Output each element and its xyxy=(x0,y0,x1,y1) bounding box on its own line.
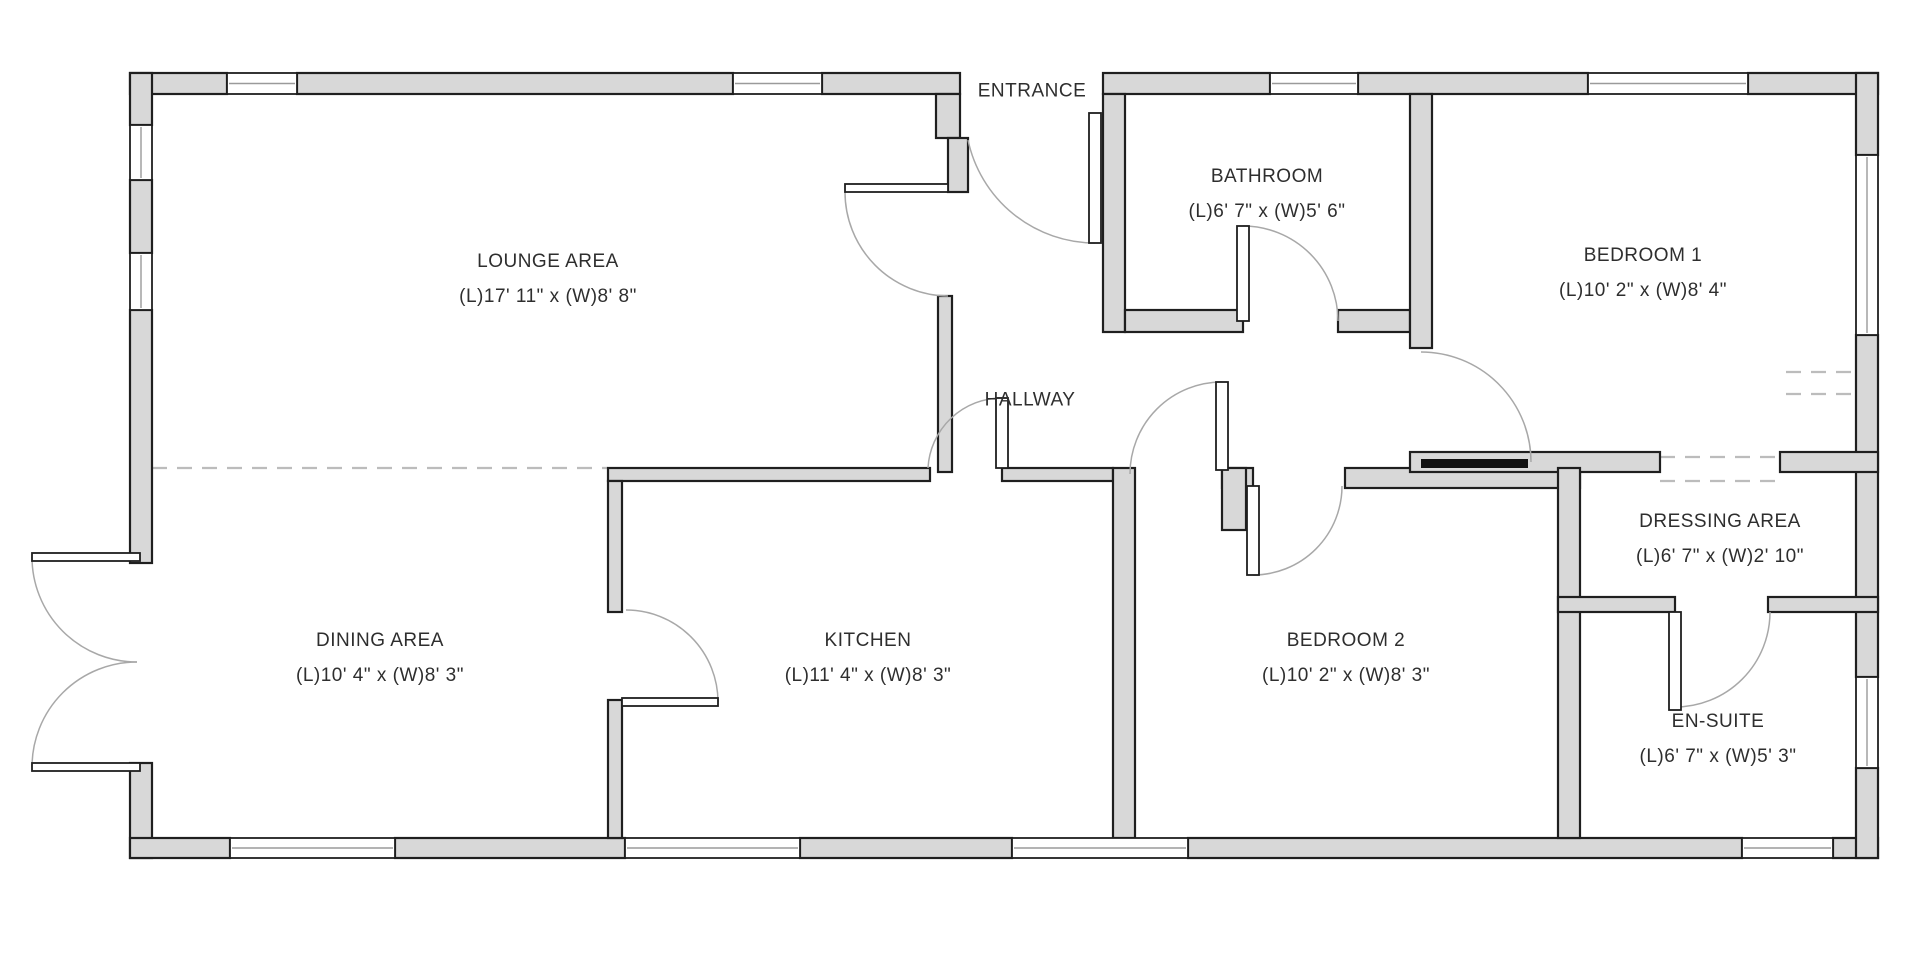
wall-segment xyxy=(608,700,622,838)
room-label-en-suite: EN-SUITE (L)6' 7" x (W)5' 3" xyxy=(1640,704,1797,774)
room-name: DINING AREA xyxy=(296,623,464,658)
room-name: BATHROOM xyxy=(1189,159,1346,194)
wall-segment xyxy=(1103,94,1125,332)
door-swing-arc xyxy=(845,192,948,296)
room-dimensions: (L)11' 4" x (W)8' 3" xyxy=(785,658,952,693)
room-dimensions: (L)6' 7" x (W)5' 3" xyxy=(1640,739,1797,774)
room-label-kitchen: KITCHEN (L)11' 4" x (W)8' 3" xyxy=(785,623,952,693)
wall-segment xyxy=(1558,468,1580,838)
door-leaf xyxy=(1089,113,1101,243)
door-leaf xyxy=(32,553,140,561)
wall-segment xyxy=(1558,597,1675,612)
wall-segment xyxy=(608,481,622,612)
wall-segment xyxy=(1103,73,1270,94)
wall-segment xyxy=(1780,452,1878,472)
room-dimensions: (L)10' 4" x (W)8' 3" xyxy=(296,658,464,693)
room-label-bedroom-1: BEDROOM 1 (L)10' 2" x (W)8' 4" xyxy=(1559,238,1727,308)
wall-segment xyxy=(1113,468,1135,838)
wall-segment xyxy=(130,180,152,253)
wall-segment xyxy=(130,310,152,563)
wall-segment xyxy=(130,73,152,125)
room-label-lounge-area: LOUNGE AREA (L)17' 11" x (W)8' 8" xyxy=(459,244,637,314)
wall-segment xyxy=(936,94,960,138)
wall-segment xyxy=(948,138,968,192)
room-name: ENTRANCE xyxy=(978,74,1087,109)
wall-segment xyxy=(1358,73,1588,94)
door-swing-arc xyxy=(1421,352,1531,462)
room-name: EN-SUITE xyxy=(1640,704,1797,739)
door-leaf xyxy=(32,763,140,771)
room-name: BEDROOM 1 xyxy=(1559,238,1727,273)
room-name: KITCHEN xyxy=(785,623,952,658)
wall-segment xyxy=(1856,768,1878,858)
room-name: BEDROOM 2 xyxy=(1262,623,1430,658)
wall-segment xyxy=(1188,838,1742,858)
wall-segment xyxy=(608,468,930,481)
door-leaf xyxy=(1237,226,1249,321)
wall-segment xyxy=(822,73,960,94)
room-dimensions: (L)10' 2" x (W)8' 4" xyxy=(1559,273,1727,308)
door-leaf xyxy=(845,184,948,192)
door-swing-arc xyxy=(1243,226,1338,321)
door-swing-arc xyxy=(1675,612,1770,707)
wall-segment xyxy=(1856,335,1878,677)
wall-segment xyxy=(1410,94,1432,348)
wall-segment xyxy=(800,838,1012,858)
room-label-entrance: ENTRANCE xyxy=(978,74,1087,109)
room-dimensions: (L)17' 11" x (W)8' 8" xyxy=(459,279,637,314)
room-name: DRESSING AREA xyxy=(1636,504,1804,539)
floor-plan-canvas xyxy=(0,0,1920,957)
wall-segment xyxy=(1222,468,1246,530)
door-swing-arc xyxy=(32,557,137,662)
door-leaf xyxy=(622,698,718,706)
wall-segment xyxy=(1338,310,1410,332)
floor-plan-page: LOUNGE AREA (L)17' 11" x (W)8' 8" DINING… xyxy=(0,0,1920,957)
wall-segment xyxy=(297,73,733,94)
room-dimensions: (L)6' 7" x (W)5' 6" xyxy=(1189,194,1346,229)
door-swing-arc xyxy=(968,140,1095,243)
door-swing-arc xyxy=(626,610,718,702)
room-label-bedroom-2: BEDROOM 2 (L)10' 2" x (W)8' 3" xyxy=(1262,623,1430,693)
wall-segment xyxy=(938,296,952,472)
room-name: HALLWAY xyxy=(985,383,1076,418)
wall-segment xyxy=(1856,73,1878,155)
wall-segment xyxy=(1768,597,1878,612)
room-dimensions: (L)6' 7" x (W)2' 10" xyxy=(1636,539,1804,574)
door-leaf xyxy=(1216,382,1228,470)
sliding-door-bar xyxy=(1421,459,1528,468)
wall-segment xyxy=(130,838,230,858)
wall-segment xyxy=(1125,310,1243,332)
door-swing-arc xyxy=(1253,486,1342,575)
wall-segment xyxy=(395,838,625,858)
room-label-dressing-area: DRESSING AREA (L)6' 7" x (W)2' 10" xyxy=(1636,504,1804,574)
door-leaf xyxy=(1247,486,1259,575)
door-swing-arc xyxy=(32,662,137,767)
room-name: LOUNGE AREA xyxy=(459,244,637,279)
door-leaf xyxy=(1669,612,1681,710)
room-label-dining-area: DINING AREA (L)10' 4" x (W)8' 3" xyxy=(296,623,464,693)
room-dimensions: (L)10' 2" x (W)8' 3" xyxy=(1262,658,1430,693)
wall-segment xyxy=(1002,468,1113,481)
door-swing-arc xyxy=(1130,382,1222,474)
room-label-bathroom: BATHROOM (L)6' 7" x (W)5' 6" xyxy=(1189,159,1346,229)
room-label-hallway: HALLWAY xyxy=(985,383,1076,418)
